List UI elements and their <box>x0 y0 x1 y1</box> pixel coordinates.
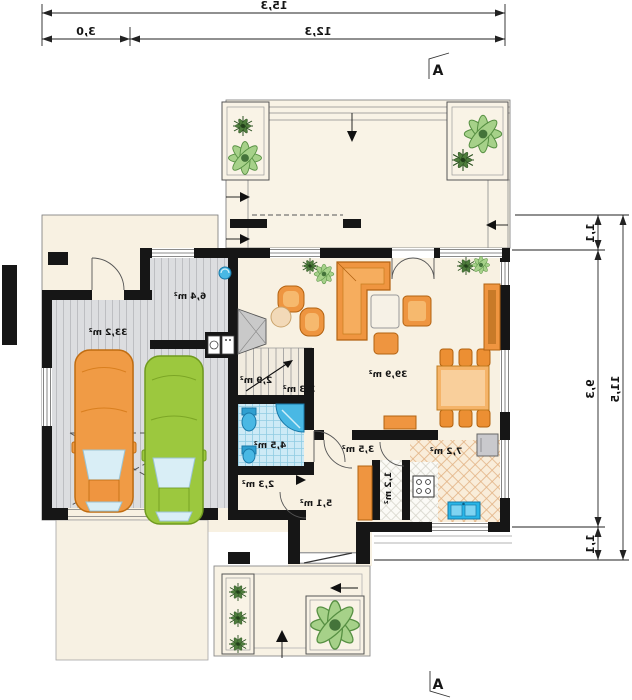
section-letter-bottom: A <box>432 677 443 693</box>
kitchen-sink-icon <box>448 502 480 519</box>
entry-door <box>300 552 356 564</box>
dim-top-left: 3,0 <box>76 25 96 38</box>
sideboard <box>484 284 500 350</box>
hall-area-label: 5,1 m² <box>300 499 332 509</box>
hallway-area-label: 3,5 m² <box>342 445 374 455</box>
window <box>152 248 194 258</box>
pantry-area-label: 1,2 m² <box>384 472 394 504</box>
utility-area-label: 6,4 m² <box>174 292 206 302</box>
plant-icon <box>464 115 501 152</box>
bench <box>384 416 416 429</box>
stove-icon <box>413 476 434 497</box>
section-letter-top: A <box>432 63 443 79</box>
chimney-block <box>2 265 17 345</box>
armchair <box>403 296 431 326</box>
dining-chair <box>440 410 453 427</box>
plant-icon <box>229 142 262 175</box>
garage-area-label: 33,2 m² <box>89 328 128 338</box>
window <box>500 262 510 285</box>
car-orange <box>72 350 136 512</box>
kitchen-area-label: 7,2 m² <box>430 447 462 457</box>
corridor-area-label: 2,9 m² <box>240 376 272 386</box>
window <box>270 248 320 258</box>
dining-chair <box>459 410 472 427</box>
dining-chair <box>477 410 490 427</box>
floor-plan-svg: 33,2 m² 6,4 m² 39,9 m² 2,9 m² 3,3 m² 4,5… <box>0 0 632 700</box>
terrace-planter-left <box>222 102 269 180</box>
window <box>500 440 510 498</box>
dining-chair <box>440 349 453 366</box>
car-green <box>142 356 206 524</box>
dim-right-middle: 9,3 <box>584 379 597 399</box>
porch-planter-left <box>222 574 254 654</box>
floor-drain-icon <box>219 267 231 279</box>
window <box>440 248 502 258</box>
armchair <box>300 308 324 336</box>
fridge-icon <box>477 434 498 456</box>
hall-wardrobe <box>358 466 372 520</box>
living-area-label: 39,9 m² <box>369 370 408 380</box>
dim-right-top: 1,1 <box>584 223 597 243</box>
driveway <box>56 520 208 660</box>
dining-chair <box>459 349 472 366</box>
terrace-wall-stub <box>48 252 68 265</box>
terrace-planter-right <box>447 102 508 180</box>
toilet-icon <box>242 408 256 431</box>
bathroom-area-label: 4,5 m² <box>254 441 286 451</box>
side-table <box>271 307 291 327</box>
stairs-area-label: 3,3 m² <box>283 385 315 395</box>
dining-set <box>437 349 490 427</box>
plant-icon <box>472 256 490 274</box>
dim-right-total: 11,5 <box>609 375 622 402</box>
plant-icon <box>314 264 334 284</box>
window <box>500 350 510 412</box>
window <box>42 368 52 426</box>
coffee-table <box>371 295 399 328</box>
dim-top-total: 15,3 <box>260 0 287 12</box>
plant-icon <box>311 601 359 649</box>
closet-area-label: 2,3 m² <box>242 480 274 490</box>
dining-chair <box>477 349 490 366</box>
porch-planter-square <box>306 596 364 654</box>
dim-top-right: 12,3 <box>304 25 331 38</box>
window <box>432 522 488 532</box>
floor-plan-page: 33,2 m² 6,4 m² 39,9 m² 2,9 m² 3,3 m² 4,5… <box>0 0 632 700</box>
entry-porch <box>214 566 370 658</box>
ottoman <box>374 333 398 354</box>
dim-right-bottom: 1,1 <box>584 534 597 554</box>
